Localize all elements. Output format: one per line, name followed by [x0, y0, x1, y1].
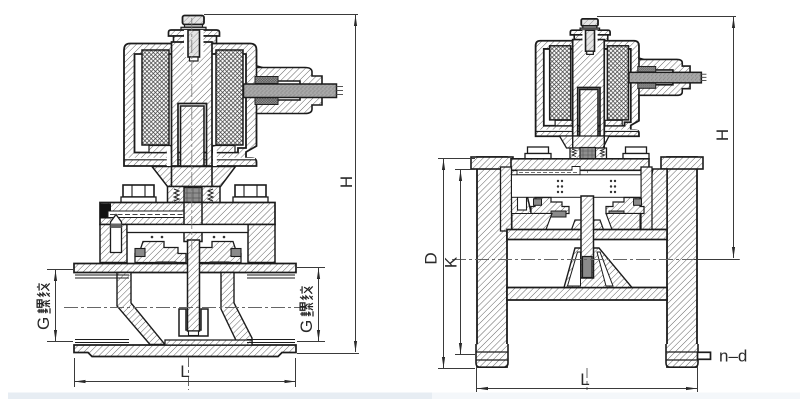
svg-text:L: L [580, 370, 589, 389]
svg-text:n–d: n–d [719, 347, 747, 366]
svg-text:G: G [34, 317, 53, 330]
svg-text:G: G [297, 320, 316, 333]
svg-text:K: K [442, 256, 461, 268]
svg-text:H: H [337, 176, 356, 188]
svg-text:D: D [422, 252, 441, 264]
svg-text:L: L [180, 362, 189, 381]
svg-text:H: H [713, 129, 732, 141]
